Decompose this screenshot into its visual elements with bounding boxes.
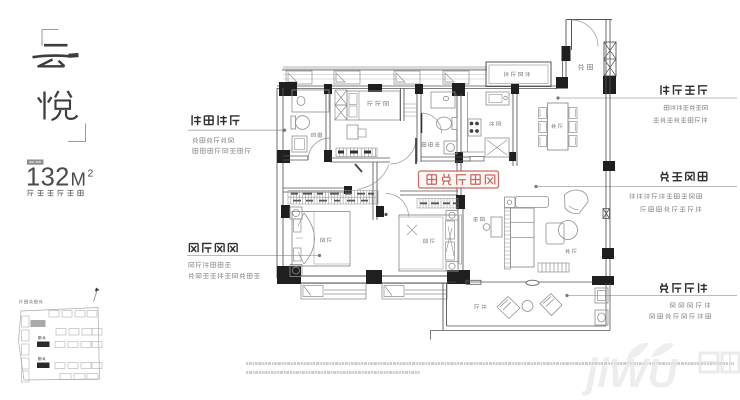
svg-text:jiWU: jiWU <box>581 350 678 396</box>
svg-text:2: 2 <box>88 168 94 180</box>
svg-text:M: M <box>71 169 86 190</box>
svg-text:132: 132 <box>26 164 70 192</box>
